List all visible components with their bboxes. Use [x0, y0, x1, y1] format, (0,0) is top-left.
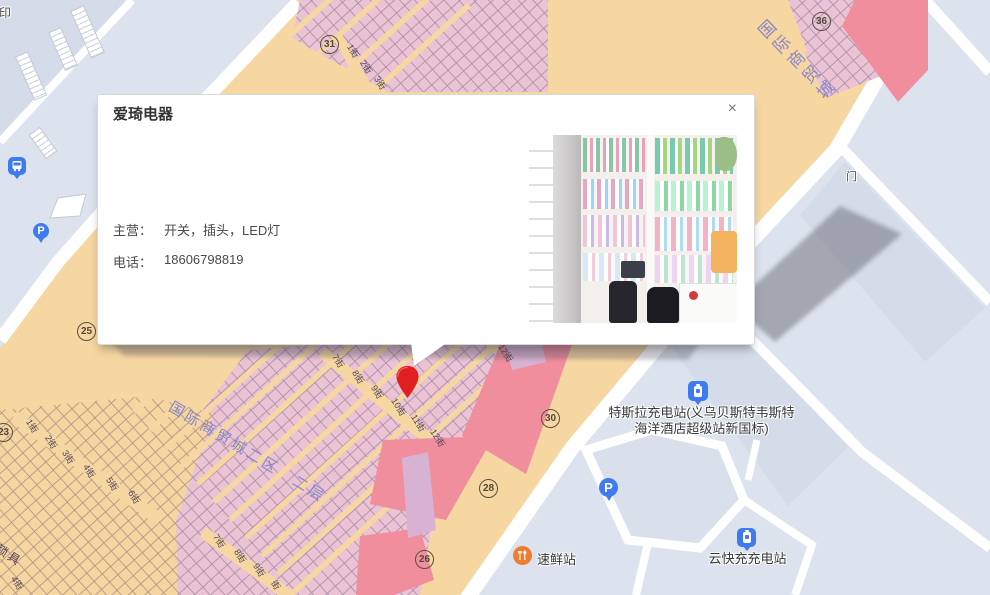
popup-title: 爱琦电器 [113, 103, 173, 124]
fresh-food-icon[interactable] [513, 546, 532, 565]
info-popup: 爱琦电器 主营： 开关，插头，LED灯 电话： 18606798819 × [97, 94, 755, 345]
block-marker-26: 26 [415, 550, 434, 569]
fork-spoon-glyph [517, 550, 528, 561]
print-shop-label: 复印 [0, 4, 11, 21]
block-marker-31: 31 [320, 35, 339, 54]
phone-label: 电话： [113, 252, 152, 271]
shop-photo[interactable] [529, 135, 737, 323]
parking-icon[interactable]: P [599, 478, 618, 497]
phone-value: 18606798819 [164, 252, 244, 267]
charger-glyph [694, 386, 702, 397]
block-marker-25: 25 [77, 322, 96, 341]
gate-label: 门 [846, 168, 857, 184]
popup-tail [410, 342, 470, 370]
cloud-charging-label: 云快充充电站 [680, 551, 815, 567]
business-label: 主营： [113, 220, 152, 239]
cloud-charging-icon[interactable] [737, 528, 756, 547]
block-marker-36: 36 [812, 12, 831, 31]
charger-glyph [743, 532, 751, 543]
tesla-charging-icon[interactable] [688, 381, 708, 401]
map-canvas[interactable]: 国际商贸城二区 二层 国际商贸城 锁具 复印 门 1街2街3街7街8街9街10街… [0, 0, 990, 595]
close-icon[interactable]: × [728, 101, 737, 117]
block-marker-30: 30 [541, 409, 560, 428]
bus-glyph [11, 160, 23, 172]
tesla-charging-label: 特斯拉充电站(义乌贝斯特韦斯特 海洋酒店超级站新国标) [585, 405, 818, 437]
bus-station-icon[interactable] [8, 157, 26, 175]
parking-icon[interactable]: P [33, 223, 49, 239]
location-pin[interactable] [396, 366, 419, 399]
business-value: 开关，插头，LED灯 [164, 220, 280, 239]
block-marker-28: 28 [479, 479, 498, 498]
fresh-food-label: 速鲜站 [537, 549, 576, 568]
